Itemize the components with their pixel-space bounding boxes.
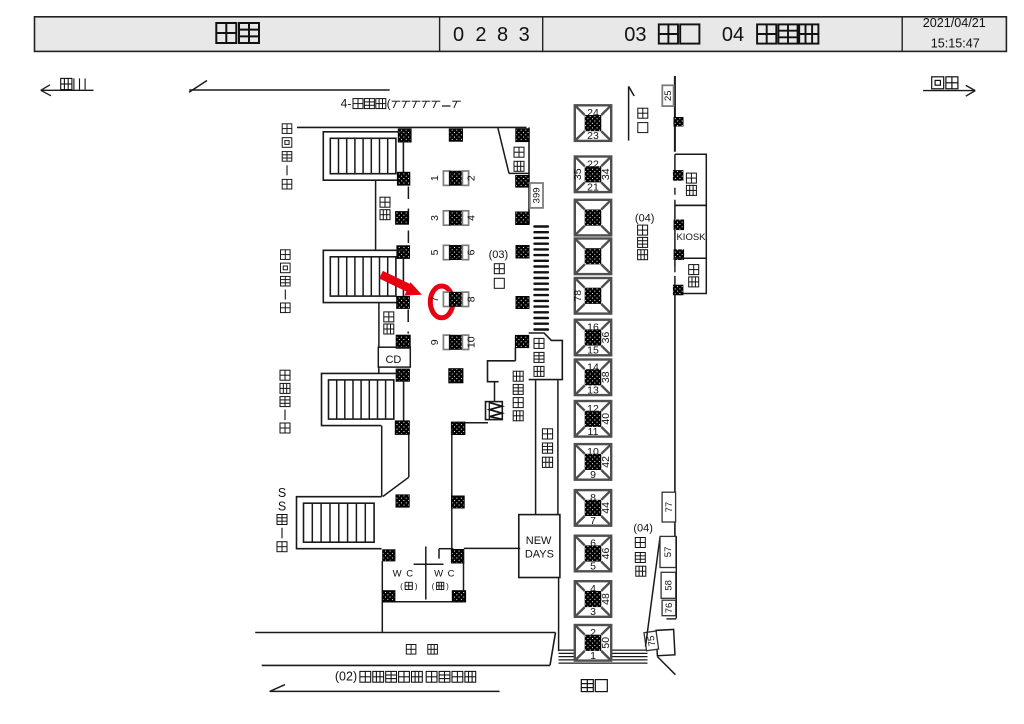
svg-text:44: 44 [600, 502, 612, 514]
svg-text:8: 8 [497, 24, 508, 46]
svg-text:15:15:47: 15:15:47 [931, 37, 980, 51]
svg-text:(: ( [432, 582, 435, 591]
svg-text:(04): (04) [635, 213, 655, 225]
svg-text:4: 4 [590, 583, 596, 595]
svg-text:W C: W C [393, 568, 414, 579]
svg-text:S: S [278, 499, 286, 513]
svg-text:): ) [446, 582, 449, 591]
svg-text:38: 38 [600, 371, 612, 383]
svg-text:7: 7 [590, 515, 596, 527]
svg-text:11: 11 [588, 426, 599, 438]
svg-text:40: 40 [600, 413, 612, 425]
svg-text:(04): (04) [633, 523, 653, 535]
svg-text:46: 46 [600, 548, 612, 560]
svg-text:03: 03 [624, 24, 646, 46]
svg-text:5: 5 [429, 249, 441, 255]
svg-text:4: 4 [466, 215, 478, 221]
svg-text:NEW: NEW [526, 535, 552, 547]
svg-text:(: ( [400, 582, 403, 591]
svg-text:76: 76 [664, 603, 675, 614]
svg-text:9: 9 [429, 339, 441, 345]
svg-text:35: 35 [572, 168, 584, 180]
svg-text:(03): (03) [489, 249, 509, 261]
svg-text:1: 1 [429, 175, 441, 181]
svg-text:KIOSK: KIOSK [676, 232, 706, 243]
svg-text:3: 3 [590, 606, 596, 618]
svg-text:42: 42 [600, 456, 612, 468]
svg-text:): ) [415, 582, 418, 591]
svg-text:22: 22 [587, 158, 599, 170]
svg-text:77: 77 [664, 502, 675, 513]
svg-text:3: 3 [519, 24, 530, 46]
svg-text:7: 7 [429, 296, 441, 302]
svg-text:6: 6 [590, 538, 596, 550]
svg-text:9: 9 [590, 469, 596, 481]
svg-text:57: 57 [663, 547, 674, 558]
svg-text:04: 04 [722, 24, 744, 46]
svg-text:(02): (02) [335, 670, 357, 684]
svg-text:2021/04/21: 2021/04/21 [923, 16, 986, 30]
svg-text:0: 0 [453, 24, 464, 46]
svg-text:W C: W C [434, 568, 455, 579]
svg-text:58: 58 [664, 580, 675, 591]
svg-text:4-: 4- [341, 97, 352, 111]
svg-text:8: 8 [466, 296, 478, 302]
svg-text:15: 15 [587, 345, 599, 357]
svg-text:S: S [278, 486, 286, 500]
svg-text:5: 5 [590, 561, 596, 573]
svg-text:14: 14 [587, 361, 599, 373]
svg-text:1: 1 [590, 650, 596, 662]
svg-text:2: 2 [475, 24, 486, 46]
svg-text:21: 21 [587, 181, 599, 193]
svg-text:36: 36 [600, 332, 612, 344]
svg-text:DAYS: DAYS [525, 548, 554, 560]
svg-text:78: 78 [572, 290, 584, 302]
svg-text:75: 75 [646, 635, 658, 647]
svg-text:12: 12 [587, 403, 599, 415]
svg-text:2: 2 [590, 627, 596, 639]
svg-text:10: 10 [587, 446, 599, 458]
svg-text:50: 50 [600, 637, 612, 649]
svg-text:16: 16 [587, 322, 599, 334]
svg-text:10: 10 [466, 336, 478, 348]
svg-text:13: 13 [587, 384, 599, 396]
svg-text:25: 25 [663, 90, 674, 101]
svg-text:2: 2 [466, 175, 478, 181]
svg-text:34: 34 [600, 168, 612, 180]
svg-text:CD: CD [385, 354, 401, 366]
svg-text:8: 8 [590, 492, 596, 504]
svg-text:23: 23 [587, 130, 599, 142]
svg-text:6: 6 [466, 249, 478, 255]
svg-text:48: 48 [600, 593, 612, 605]
svg-text:399: 399 [532, 187, 543, 203]
svg-text:(: ( [387, 97, 391, 111]
svg-text:3: 3 [429, 215, 441, 221]
svg-text:24: 24 [587, 107, 599, 119]
